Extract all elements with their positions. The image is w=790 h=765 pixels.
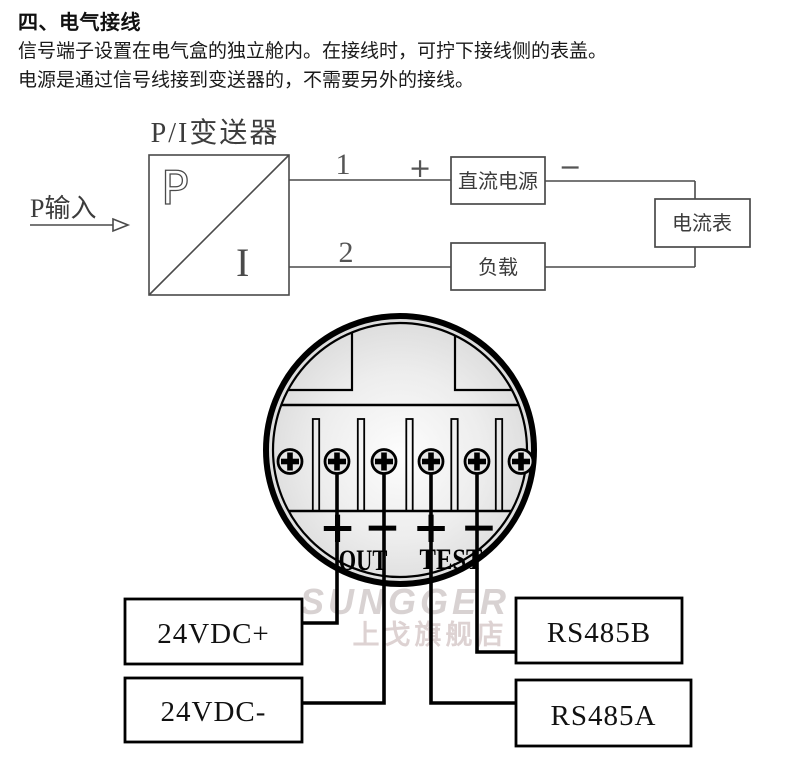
loop-circuit: P/I变送器 P I P输入 1 + 直流电源 − 电流表 2 负载 <box>30 117 750 295</box>
screw-terminal <box>509 450 533 474</box>
minus-sign-top: − <box>559 152 582 183</box>
terminal-1-label: 1 <box>336 148 351 181</box>
screw-terminal <box>372 450 396 474</box>
screw-terminal <box>278 450 302 474</box>
screw-terminal <box>325 450 349 474</box>
terminal-2-label: 2 <box>339 236 354 269</box>
label-24vdc-plus: 24VDC+ <box>157 618 270 650</box>
manual-page: 四、电气接线 信号端子设置在电气盒的独立舱内。在接线时，可拧下接线侧的表盖。 电… <box>0 0 790 765</box>
pressure-symbol: P <box>161 161 189 215</box>
ammeter-label: 电流表 <box>672 212 732 235</box>
plus-sign-top: + <box>409 153 432 184</box>
wiring-diagram: SUNGGER 上戈旗舰店 P/I变送器 P I P输入 1 + 直流电源 − … <box>0 0 790 765</box>
out-label: OUT <box>339 543 388 577</box>
load-label: 负载 <box>478 256 518 279</box>
label-rs485a: RS485A <box>551 700 657 732</box>
dc-power-label: 直流电源 <box>458 170 538 193</box>
p-input-label: P输入 <box>30 194 96 223</box>
p-input-arrowhead-icon <box>113 219 128 231</box>
label-24vdc-minus: 24VDC- <box>161 696 267 728</box>
label-rs485b: RS485B <box>547 617 651 649</box>
screw-terminal <box>419 450 443 474</box>
screw-terminal <box>465 450 489 474</box>
test-label: TEST <box>420 543 483 576</box>
transmitter-title: P/I变送器 <box>151 117 280 149</box>
current-symbol: I <box>236 240 249 285</box>
